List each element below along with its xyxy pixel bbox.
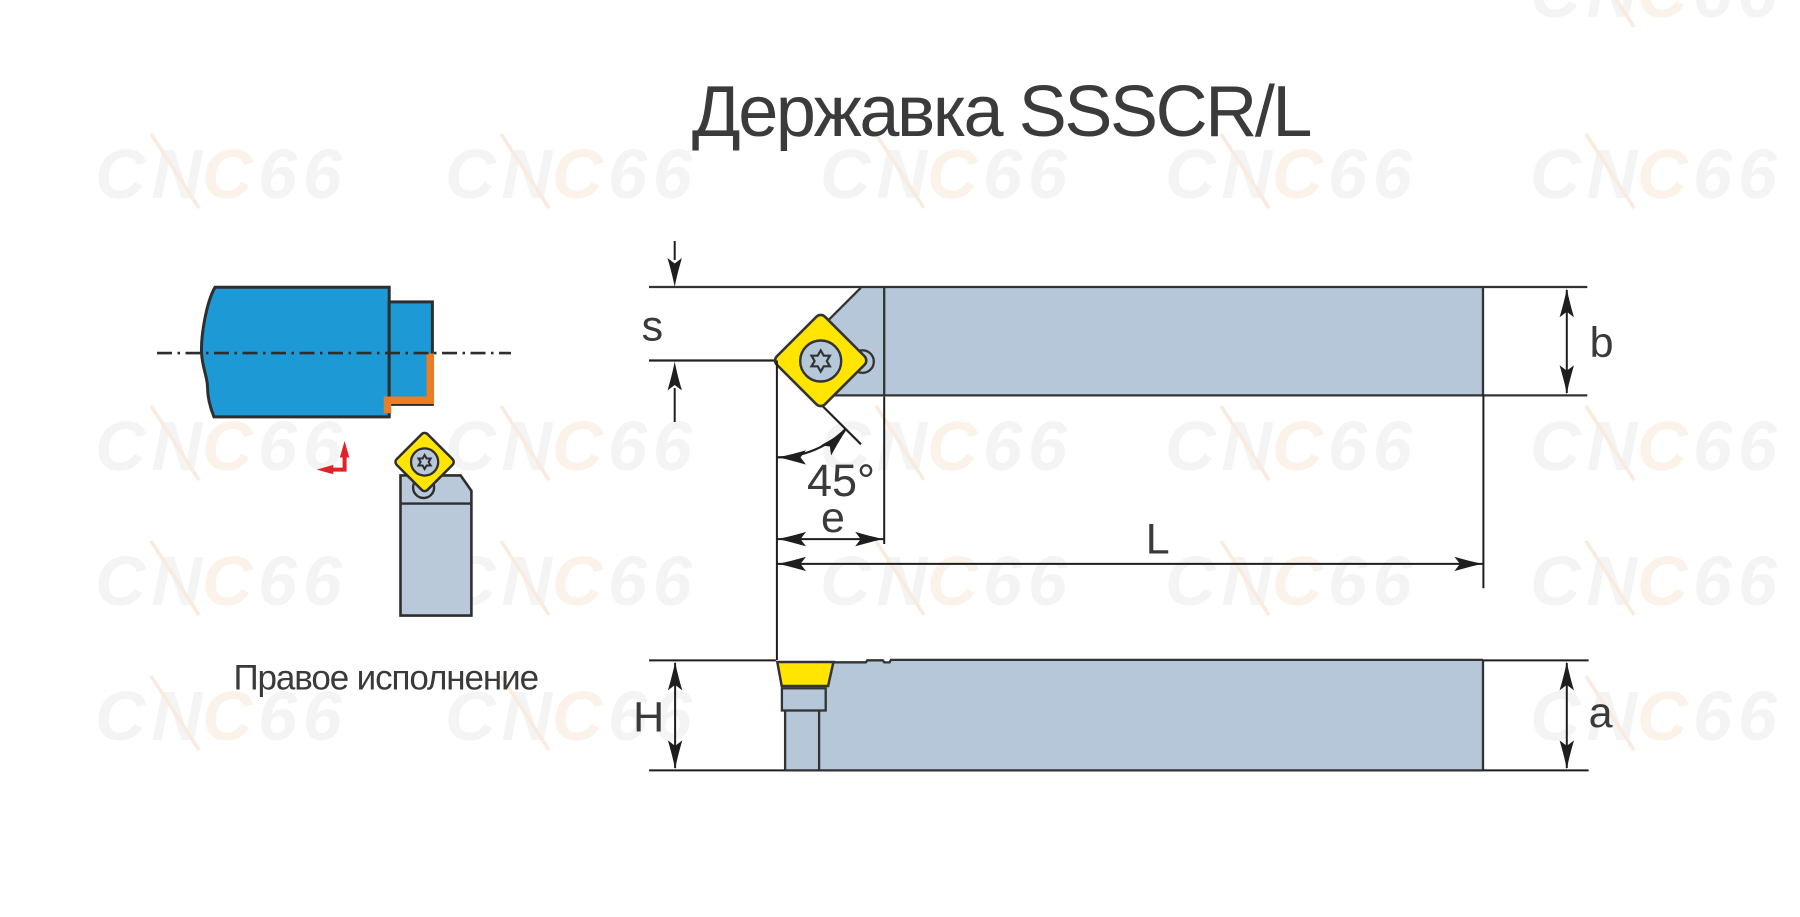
svg-text:s: s: [642, 303, 664, 351]
svg-text:e: e: [821, 494, 845, 542]
svg-text:b: b: [1590, 319, 1614, 367]
svg-text:Правое исполнение: Правое исполнение: [233, 658, 538, 697]
svg-text:L: L: [1146, 516, 1170, 564]
svg-text:Державка SSSCR/L: Державка SSSCR/L: [692, 72, 1311, 152]
svg-text:H: H: [633, 694, 664, 742]
svg-text:a: a: [1589, 689, 1613, 737]
